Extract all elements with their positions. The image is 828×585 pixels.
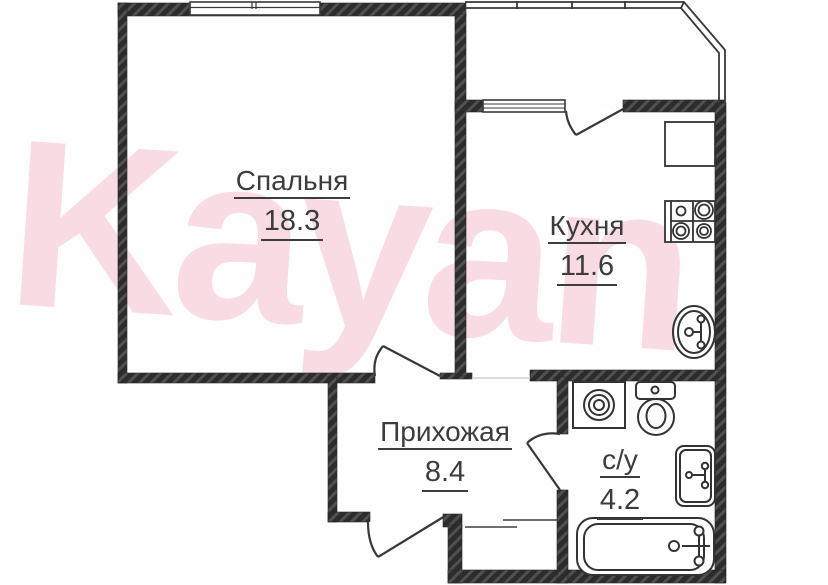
bedroom-area: 18.3 [261, 206, 323, 240]
bedroom-name: Спальня [234, 166, 351, 199]
kitchen-name: Кухня [548, 211, 627, 244]
bathroom-name: с/у [600, 445, 640, 478]
kitchen-window [483, 100, 565, 112]
entrance-door [368, 516, 445, 557]
wall-bedroom-left [118, 3, 127, 383]
kitchen-area: 11.6 [557, 251, 617, 285]
bathtub-icon [577, 518, 714, 575]
entrance-threshold-lines [465, 520, 557, 527]
room-label-kitchen: Кухня 11.6 [487, 211, 687, 286]
room-label-bathroom: с/у 4.2 [520, 445, 720, 520]
hallway-area: 8.4 [422, 457, 468, 491]
bathroom-area: 4.2 [597, 485, 643, 519]
balcony-door [566, 108, 625, 135]
toilet-icon [636, 382, 675, 435]
wall-hallway-left [328, 377, 337, 522]
wall-hallway-bottom [328, 512, 370, 522]
wall-bathroom-left-top [557, 377, 568, 434]
washing-machine-icon [573, 382, 625, 428]
bedroom-door [374, 346, 440, 376]
kitchen-counter [665, 122, 715, 166]
wall-balcony-right-seg [623, 100, 725, 112]
room-label-bedroom: Спальня 18.3 [192, 166, 392, 241]
bedroom-window [190, 2, 320, 15]
room-label-hallway: Прихожая 8.4 [345, 417, 545, 492]
wall-core-vertical [455, 14, 466, 376]
floor-plan-canvas: Kayan [0, 0, 828, 585]
kitchen-sink-icon [673, 306, 715, 358]
hallway-name: Прихожая [378, 417, 512, 450]
balcony-glazing [465, 1, 725, 103]
wall-balcony-left-seg [455, 100, 485, 112]
